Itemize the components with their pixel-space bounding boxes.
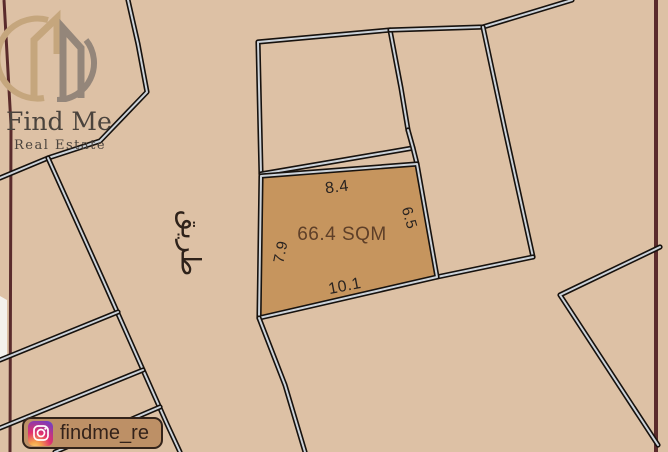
- road-label-arabic: طريق: [175, 210, 206, 276]
- instagram-icon: [28, 421, 53, 446]
- parcel-upper: [258, 30, 413, 174]
- boundary-northeast-vertical: [483, 27, 533, 257]
- page-edge-white: [0, 296, 7, 362]
- logo-subtitle: Real Estate: [14, 138, 150, 153]
- boundary-east-parcel-bottom: [437, 257, 533, 277]
- instagram-badge[interactable]: findme_re: [22, 417, 163, 449]
- instagram-handle: findme_re: [60, 423, 149, 443]
- logo-title: Find Me: [6, 109, 150, 134]
- buildings-logo-icon: [0, 6, 104, 102]
- boundary-south-drop: [259, 318, 305, 452]
- dimension-top: 8.4: [324, 178, 350, 199]
- listing-image: 8.4 6.5 7.9 10.1 66.4 SQM طريق Find Me R…: [0, 0, 668, 452]
- brand-logo: Find Me Real Estate: [0, 6, 150, 153]
- boundary-west-branch-1: [0, 312, 118, 360]
- plot-area-label: 66.4 SQM: [297, 224, 387, 246]
- boundary-southeast-wedge: [560, 247, 660, 445]
